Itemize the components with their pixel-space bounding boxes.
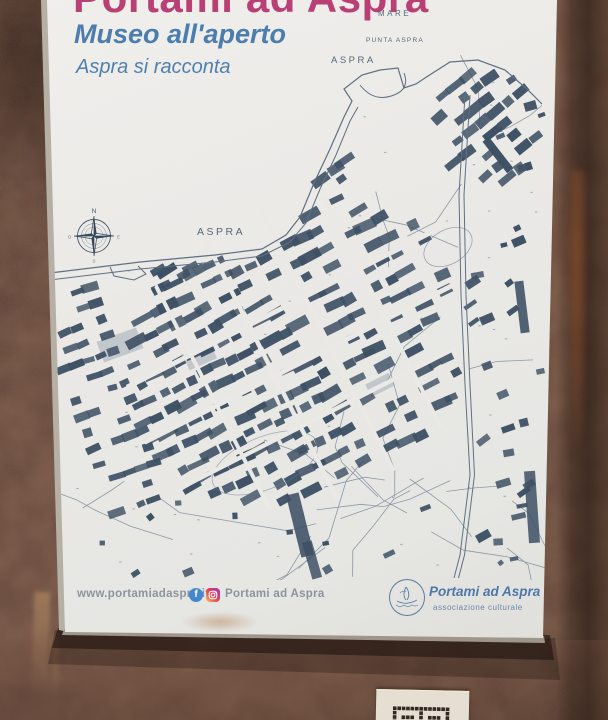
compass-north-label: N [92,208,97,215]
photo-of-aspra-sign: Portami ad Aspra Museo all'aperto Aspra … [0,0,608,720]
rust-stain-on-poster [183,612,257,632]
qr-code-plaque [376,689,470,720]
logo-subtitle: associazione culturale [433,603,523,612]
aspra-town-map [50,55,550,580]
rust-drip [32,592,51,704]
aspra-poster: Portami ad Aspra Museo all'aperto Aspra … [0,0,608,720]
map-label-sea: MARE [378,9,411,18]
instagram-icon [206,588,220,602]
compass-rose-icon: N E S O [66,205,122,263]
poster-subtitle: Museo all'aperto [74,19,286,50]
map-label-punta-aspra: PUNTA ASPRA [366,37,424,44]
social-handle: Portami ad Aspra [225,588,325,600]
map-label-aspra-upper: ASPRA [331,55,376,66]
rust-streak [566,170,588,470]
map-label-aspra-coast: ASPRA [197,226,245,238]
logo-emblem-icon [389,579,425,616]
qr-code-icon [376,690,470,720]
compass-south-label: S [92,259,95,264]
compass-west-label: O [68,235,72,240]
facebook-icon: f [189,588,203,602]
logo-name: Portami ad Aspra [429,584,540,599]
compass-east-label: E [117,235,120,240]
